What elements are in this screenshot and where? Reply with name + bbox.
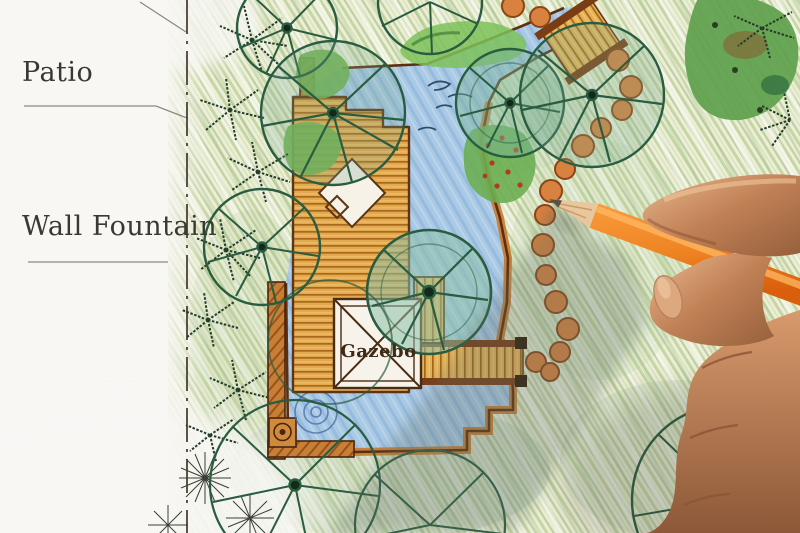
tree xyxy=(261,41,405,185)
gazebo-label: Gazebo xyxy=(336,341,421,362)
wall-fountain-label: Wall Fountain xyxy=(22,211,217,242)
landscape-plan-photo: Patio Wall Fountain Gazebo xyxy=(0,0,800,533)
patio-label: Patio xyxy=(22,57,93,88)
tree xyxy=(520,23,664,167)
plan-drawing xyxy=(0,0,800,533)
